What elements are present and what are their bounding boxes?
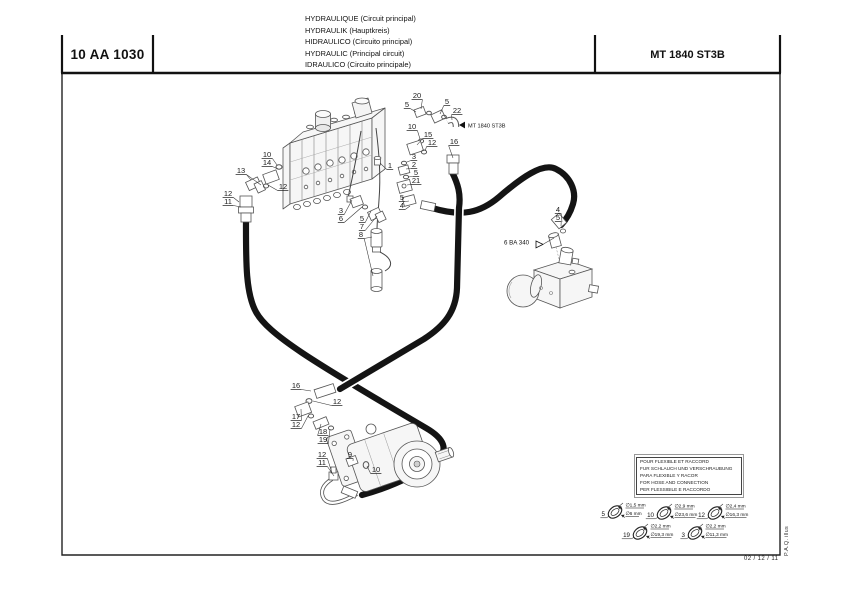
measurement-19: 19∅2,2 mm∅19,3 mm [622, 524, 674, 542]
hose-legend-text: POUR FLEXIBLE ET RACCORD FUR SCHLAUCH UN… [636, 457, 742, 495]
svg-text:12: 12 [698, 512, 705, 519]
svg-text:∅11,3 mm: ∅11,3 mm [706, 532, 728, 538]
measurement-3: 3∅2,2 mm∅11,3 mm [680, 524, 728, 542]
svg-text:20: 20 [413, 91, 421, 100]
left-arrow-icon [459, 122, 465, 129]
measurement-5: 5∅1,5 mm∅6 mm [600, 503, 645, 521]
legend-line: PER FLESSIBILE E RACCORDO [640, 487, 741, 494]
svg-text:10: 10 [408, 122, 416, 131]
svg-text:12: 12 [428, 138, 436, 147]
svg-text:13: 13 [237, 166, 245, 175]
right-arrow-icon [536, 241, 543, 248]
svg-text:21: 21 [412, 176, 420, 185]
svg-text:∅2,2 mm: ∅2,2 mm [706, 524, 726, 530]
svg-text:∅2,9 mm: ∅2,9 mm [675, 504, 695, 510]
measurement-12: 12∅2,4 mm∅16,3 mm [697, 504, 749, 522]
measurement-layer: 5∅1,5 mm∅6 mm10∅2,9 mm∅23,6 mm12∅2,4 mm∅… [600, 503, 748, 542]
svg-text:11: 11 [224, 197, 232, 206]
parts-diagram: MT 1840 ST3B 6 BA 340 205522101512161325… [0, 0, 842, 596]
control-valve-illustration [283, 98, 385, 210]
callout-20: 20 [412, 91, 423, 109]
svg-text:8: 8 [359, 230, 363, 239]
legend-line: POUR FLEXIBLE ET RACCORD [640, 459, 741, 466]
legend-line: PARA FLEXIBLE Y RACOR [640, 473, 741, 480]
measurement-10: 10∅2,9 mm∅23,6 mm [646, 504, 698, 522]
mt-reference: MT 1840 ST3B [468, 124, 506, 130]
illustrator-credit: P.A.Q. illus [784, 486, 790, 556]
svg-text:5: 5 [602, 511, 606, 518]
callout-16: 16 [291, 381, 311, 391]
svg-text:19: 19 [623, 532, 630, 539]
svg-text:∅2,2 mm: ∅2,2 mm [651, 524, 671, 530]
svg-text:12: 12 [333, 397, 341, 406]
svg-text:22: 22 [453, 106, 461, 115]
callout-12: 12 [425, 138, 437, 151]
svg-text:∅2,4 mm: ∅2,4 mm [726, 504, 746, 510]
svg-text:5: 5 [556, 213, 560, 222]
svg-text:16: 16 [292, 381, 300, 390]
hose-legend-box: POUR FLEXIBLE ET RACCORD FUR SCHLAUCH UN… [634, 454, 744, 498]
svg-text:6: 6 [339, 214, 343, 223]
legend-line: FUR SCHLAUCH UND VERSCHRAUBUNG [640, 466, 741, 473]
svg-text:∅1,5 mm: ∅1,5 mm [626, 503, 646, 509]
svg-text:19: 19 [319, 435, 327, 444]
svg-text:4: 4 [400, 201, 404, 210]
svg-text:∅19,3 mm: ∅19,3 mm [651, 532, 674, 538]
svg-text:∅16,3 mm: ∅16,3 mm [726, 512, 749, 518]
svg-text:16: 16 [450, 137, 458, 146]
svg-text:∅23,6 mm: ∅23,6 mm [675, 512, 698, 518]
svg-text:12: 12 [279, 182, 287, 191]
ba-reference: 6 BA 340 [504, 240, 530, 247]
parts-catalog-page: { "header": { "code": "10 AA 1030", "mod… [0, 0, 842, 596]
callout-11: 11 [223, 197, 241, 207]
svg-text:3: 3 [682, 532, 686, 539]
callout-12: 12 [268, 182, 288, 191]
svg-text:12: 12 [292, 420, 300, 429]
svg-text:14: 14 [263, 158, 271, 167]
svg-text:5: 5 [405, 100, 409, 109]
callout-10: 10 [407, 122, 420, 139]
svg-text:∅6 mm: ∅6 mm [626, 511, 642, 517]
svg-text:10: 10 [372, 465, 380, 474]
svg-text:1: 1 [388, 161, 392, 170]
revision-date: 02 / 12 / 11 [744, 556, 778, 562]
svg-text:11: 11 [318, 458, 326, 467]
svg-text:10: 10 [647, 512, 654, 519]
svg-text:5: 5 [445, 97, 449, 106]
svg-text:9: 9 [348, 450, 352, 459]
legend-line: FOR HOSE AND CONNECTION [640, 480, 741, 487]
